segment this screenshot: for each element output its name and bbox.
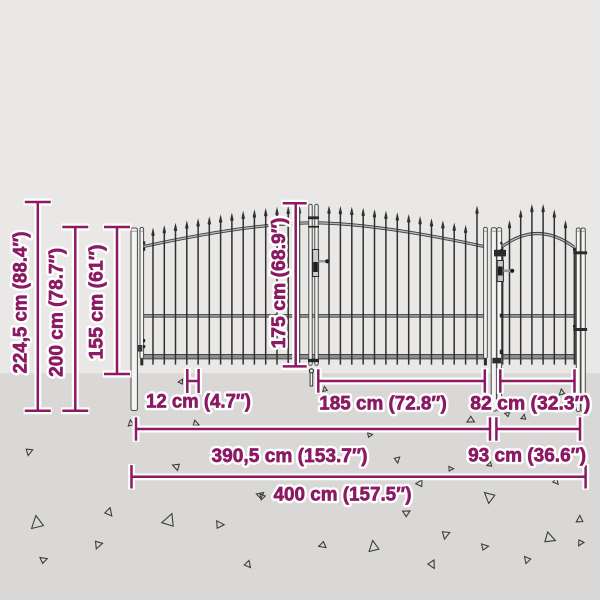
svg-text:12 cm (4.7″): 12 cm (4.7″): [146, 390, 251, 412]
svg-text:390,5 cm (153.7″): 390,5 cm (153.7″): [212, 445, 368, 467]
svg-text:93 cm (36.6″): 93 cm (36.6″): [468, 445, 586, 467]
svg-text:200 cm (78.7″): 200 cm (78.7″): [46, 248, 68, 377]
svg-text:400 cm (157.5″): 400 cm (157.5″): [274, 484, 412, 506]
svg-text:185 cm (72.8″): 185 cm (72.8″): [319, 393, 447, 415]
svg-text:175 cm (68.9″): 175 cm (68.9″): [268, 218, 290, 349]
svg-text:155 cm (61″): 155 cm (61″): [85, 245, 107, 360]
svg-text:82 cm (32.3″): 82 cm (32.3″): [470, 393, 590, 415]
svg-text:224,5 cm (88.4″): 224,5 cm (88.4″): [9, 232, 31, 374]
